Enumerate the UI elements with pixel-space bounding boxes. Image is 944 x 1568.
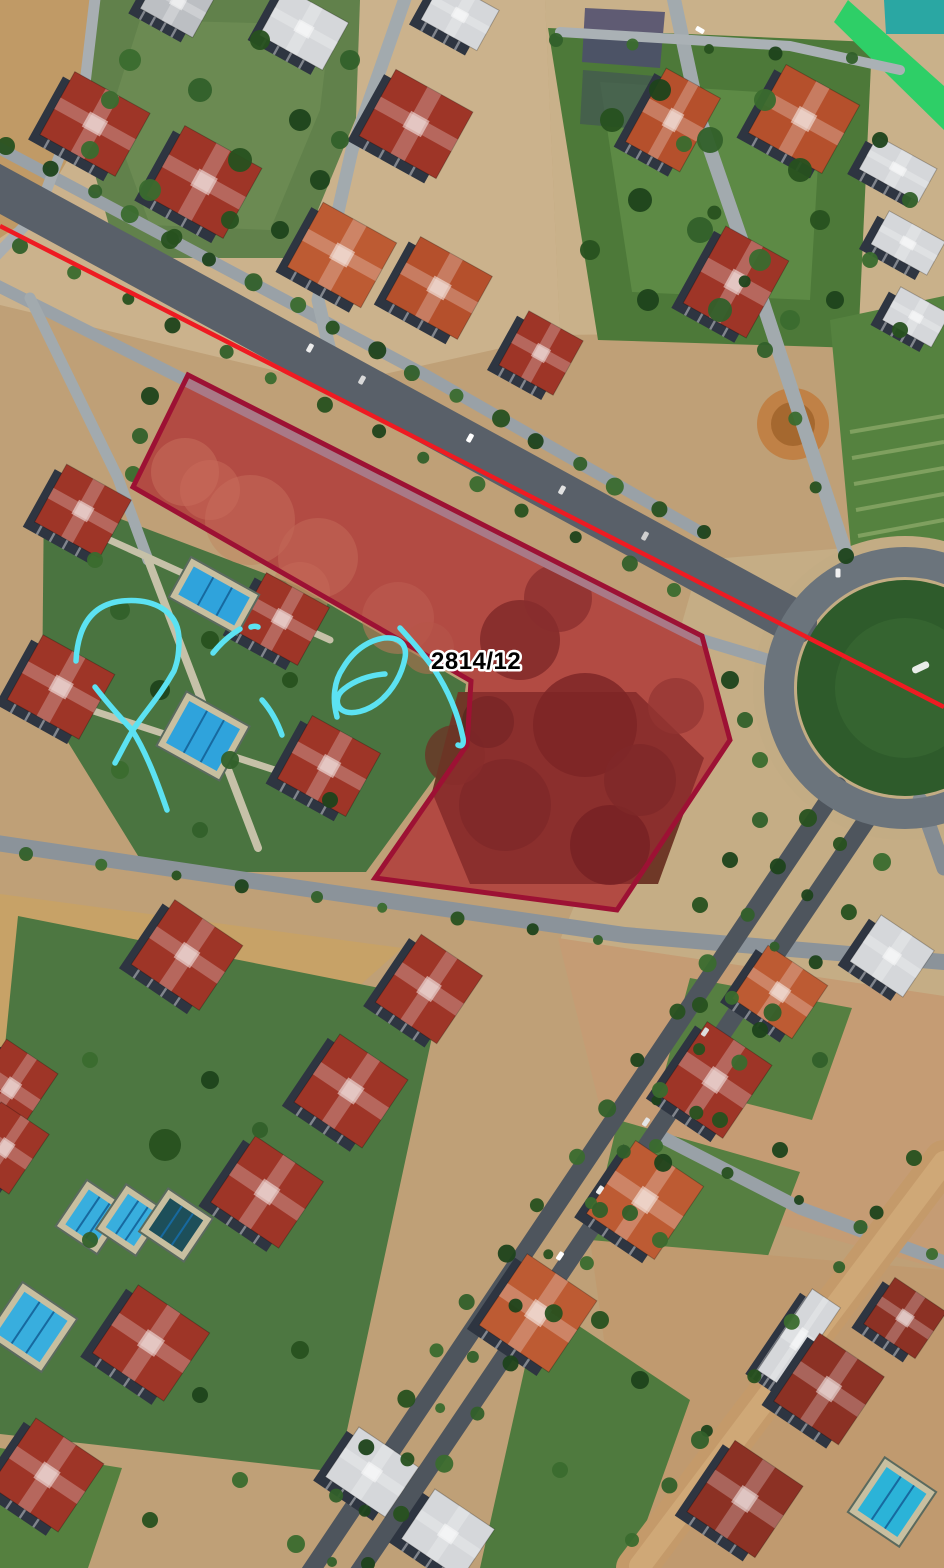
roundabout: [779, 562, 944, 814]
scribble-dash-dot: [251, 626, 258, 627]
parcel-label: 2814/12: [431, 648, 521, 675]
map-canvas: 2814/12: [0, 0, 944, 1568]
satellite-map-screenshot: 2814/12: [0, 0, 944, 1568]
